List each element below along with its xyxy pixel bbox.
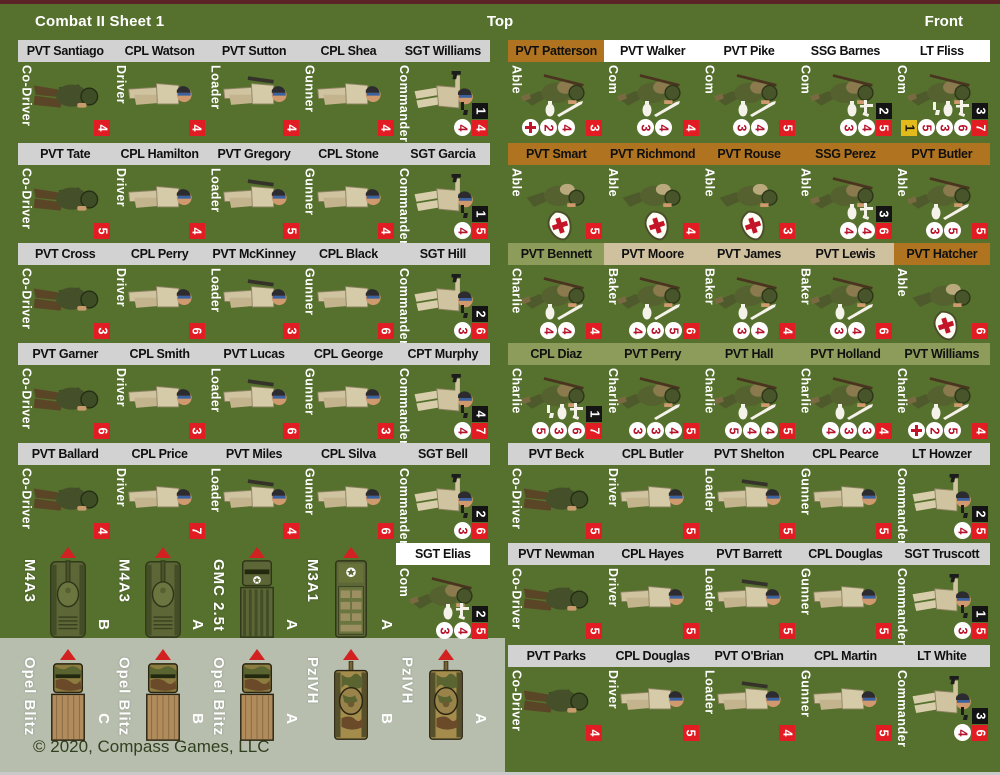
counter-row: Opel BlitzC Opel BlitzB Opel BlitzA PzIV… bbox=[18, 645, 490, 743]
counter-name: CPL Smith bbox=[129, 347, 189, 361]
counter-cell: PVT Newman Co-Driver5 bbox=[508, 543, 604, 641]
counter-body: Gunner4 bbox=[301, 165, 395, 241]
counter-body: Gunner5 bbox=[797, 465, 893, 541]
rifle-icon bbox=[557, 304, 583, 320]
counter-name-strip: PVT Ballard bbox=[18, 443, 112, 465]
counter-name: SGT Truscott bbox=[904, 547, 979, 561]
badge-row: 5 bbox=[94, 223, 110, 239]
number-circle-badge: 4 bbox=[655, 119, 672, 136]
red-number-badge: 5 bbox=[683, 725, 699, 741]
number-circle-badge: 3 bbox=[454, 322, 471, 339]
badge-column: 4 bbox=[972, 423, 988, 439]
counter-body: Baker346 bbox=[797, 265, 893, 341]
front-arrow-icon bbox=[343, 547, 359, 558]
counter-cell: PzIVHB bbox=[301, 645, 395, 743]
soldier-figure-prone bbox=[521, 671, 595, 726]
soldier-figure-prone bbox=[521, 569, 595, 624]
soldier-figure-tan bbox=[125, 369, 199, 424]
yellow-number-badge: 1 bbox=[901, 120, 917, 136]
counter-name: PVT Beck bbox=[529, 447, 584, 461]
front-arrow-icon bbox=[438, 649, 454, 660]
number-circle-badge: 4 bbox=[822, 422, 839, 439]
soldier-figure-tan bbox=[314, 369, 388, 424]
counter-cell: SGT Elias Com3425 bbox=[396, 543, 490, 641]
counter-name-strip: LT Howzer bbox=[894, 443, 990, 465]
badge-column: 2 bbox=[926, 422, 943, 439]
soldier-figure-prone bbox=[31, 469, 105, 524]
badge-column: 5 bbox=[876, 623, 892, 639]
number-circle-badge: 2 bbox=[926, 422, 943, 439]
counter-body: Co-Driver3 bbox=[18, 265, 112, 341]
counter-name-strip: PVT Holland bbox=[797, 343, 893, 365]
counter-body: Driver5 bbox=[604, 465, 700, 541]
badge-column: 4 bbox=[586, 323, 602, 339]
badge-column: 5 bbox=[779, 623, 795, 639]
badge-column: 4 bbox=[779, 725, 795, 741]
counter-body: Commander326 bbox=[396, 465, 490, 541]
badge-column: 5 bbox=[876, 523, 892, 539]
soldier-figure-loader bbox=[220, 66, 294, 121]
counter-cell: SSG Perez Able4436 bbox=[797, 143, 893, 241]
counter-body: Gunner5 bbox=[797, 667, 893, 743]
number-circle-badge: 3 bbox=[733, 119, 750, 136]
number-circle-badge: 4 bbox=[665, 422, 682, 439]
badge-column: 4 bbox=[665, 422, 682, 439]
badge-row: 7 bbox=[189, 523, 205, 539]
badge-row: 415 bbox=[454, 206, 488, 239]
weapon-icons bbox=[545, 101, 583, 117]
vehicle-figure-gmc bbox=[235, 558, 279, 645]
weapon-icons bbox=[642, 304, 680, 320]
counter-body: Driver4 bbox=[112, 165, 206, 241]
counter-name-strip: PVT Sutton bbox=[207, 40, 301, 62]
counter-name-strip: CPL Stone bbox=[301, 143, 395, 165]
red-number-badge: 5 bbox=[683, 523, 699, 539]
counter-body: Co-Driver4 bbox=[18, 62, 112, 138]
counter-name-strip: PVT Beck bbox=[508, 443, 604, 465]
rifle-icon bbox=[750, 304, 776, 320]
counter-body: Loader5 bbox=[207, 165, 301, 241]
counter-cell: SGT Williams Commander414 bbox=[396, 40, 490, 138]
counter-name-strip: PVT Richmond bbox=[604, 143, 700, 165]
number-circle-badge: 3 bbox=[840, 119, 857, 136]
counter-name-strip: PVT Santiago bbox=[18, 40, 112, 62]
counter-cell: CPL Smith Driver3 bbox=[112, 343, 206, 441]
badge-row: 4 bbox=[779, 725, 795, 741]
red-number-badge: 4 bbox=[283, 523, 299, 539]
counter-name: CPL Stone bbox=[318, 147, 378, 161]
badge-row: 436 bbox=[954, 708, 988, 741]
badge-column: 3 bbox=[779, 223, 795, 239]
number-circle-badge: 4 bbox=[558, 322, 575, 339]
counter-body: Co-Driver4 bbox=[18, 465, 112, 541]
counter-body: Opel BlitzB bbox=[112, 645, 206, 743]
vehicle-name: PzIVH bbox=[304, 657, 321, 705]
counter-name-strip: PVT James bbox=[701, 243, 797, 265]
counter-cell: SSG Barnes Com3425 bbox=[797, 40, 893, 138]
counter-name: CPT Murphy bbox=[408, 347, 479, 361]
counter-body: Driver6 bbox=[112, 265, 206, 341]
front-arrow-icon bbox=[343, 649, 359, 660]
badge-column bbox=[644, 210, 672, 239]
counter-name: PVT Richmond bbox=[610, 147, 695, 161]
badge-column: 3 bbox=[647, 422, 664, 439]
front-arrow-icon bbox=[60, 649, 76, 660]
counter-name-strip: PVT Moore bbox=[604, 243, 700, 265]
counter-body: Commander315 bbox=[894, 565, 990, 641]
counter-name: PVT Sutton bbox=[222, 44, 286, 58]
counter-body: Commander415 bbox=[396, 165, 490, 241]
red-number-badge: 6 bbox=[876, 223, 892, 239]
badge-column bbox=[547, 210, 575, 239]
counter-name-strip: SGT Garcia bbox=[396, 143, 490, 165]
red-number-badge: 4 bbox=[683, 120, 699, 136]
badge-column: 4 bbox=[454, 622, 471, 639]
weapon-icons bbox=[738, 304, 776, 320]
counter-cell: PVT Holland Charlie4334 bbox=[797, 343, 893, 441]
badge-column: 5 bbox=[779, 523, 795, 539]
number-circle-badge: 3 bbox=[647, 322, 664, 339]
counter-name-strip: SGT Williams bbox=[396, 40, 490, 62]
counter-cell: PVT Santiago Co-Driver4 bbox=[18, 40, 112, 138]
counter-body: Commander436 bbox=[894, 667, 990, 743]
red-number-badge: 7 bbox=[972, 120, 988, 136]
badge-row: 3 bbox=[283, 323, 299, 339]
badge-column: 4 bbox=[751, 322, 768, 339]
badge-column: 5 bbox=[944, 422, 961, 439]
red-number-badge: 6 bbox=[972, 323, 988, 339]
counter-body: Able355 bbox=[894, 165, 990, 241]
counter-cell: SGT Bell Commander326 bbox=[396, 443, 490, 541]
counter-name-strip: SGT Hill bbox=[396, 243, 490, 265]
soldier-figure-tan bbox=[125, 66, 199, 121]
number-circle-badge: 3 bbox=[647, 422, 664, 439]
counter-cell: CPT Murphy Commander447 bbox=[396, 343, 490, 441]
counter-cell: CPL Silva Gunner6 bbox=[301, 443, 395, 541]
counter-name: PVT Miles bbox=[226, 447, 282, 461]
badge-column: 26 bbox=[472, 306, 488, 339]
counter-cell: Opel BlitzC bbox=[18, 645, 112, 743]
badge-column bbox=[962, 235, 971, 239]
rifle-icon bbox=[847, 304, 873, 320]
badge-row: 315 bbox=[954, 606, 988, 639]
counter-cell: PVT James Baker344 bbox=[701, 243, 797, 341]
counter-name-strip: PVT Butler bbox=[894, 143, 990, 165]
counter-sheet: Combat II Sheet 1 Top Front © 2020, Comp… bbox=[0, 0, 1000, 775]
badge-row: 6 bbox=[378, 523, 394, 539]
counter-name-strip: PVT Newman bbox=[508, 543, 604, 565]
counter-cell: PzIVHA bbox=[396, 645, 490, 743]
badge-row: 4 bbox=[283, 120, 299, 136]
counter-cell: M4A3B bbox=[18, 543, 112, 641]
counter-name: PVT Barrett bbox=[716, 547, 781, 561]
counter-body: PzIVHB bbox=[301, 645, 395, 743]
black-number-badge: 2 bbox=[472, 506, 488, 522]
badge-column: 4 bbox=[378, 223, 394, 239]
number-circle-badge: 4 bbox=[540, 322, 557, 339]
counter-name-strip: SGT Bell bbox=[396, 443, 490, 465]
counter-cell: PVT Lucas Loader6 bbox=[207, 343, 301, 441]
badge-column: 36 bbox=[972, 708, 988, 741]
counter-name-strip: CPL Shea bbox=[301, 40, 395, 62]
counter-body: M3A1A bbox=[301, 565, 395, 641]
red-number-badge: 4 bbox=[586, 725, 602, 741]
counter-name: PVT Lewis bbox=[816, 247, 876, 261]
counter-cell: PVT Hatcher Able6 bbox=[894, 243, 990, 341]
counter-body: Driver7 bbox=[112, 465, 206, 541]
soldier-figure-tan bbox=[125, 169, 199, 224]
counter-name-strip: PVT Rouse bbox=[701, 143, 797, 165]
counter-name: PVT Shelton bbox=[714, 447, 784, 461]
counter-name-strip: PVT Hatcher bbox=[894, 243, 990, 265]
counter-name-strip: CPL Silva bbox=[301, 443, 395, 465]
badge-column: 4 bbox=[954, 522, 971, 539]
counter-body: Co-Driver5 bbox=[508, 465, 604, 541]
number-circle-badge: 3 bbox=[840, 422, 857, 439]
counter-cell: CPL Hayes Driver5 bbox=[604, 543, 700, 641]
counter-cell: PVT Ballard Co-Driver4 bbox=[18, 443, 112, 541]
badge-column: 5 bbox=[779, 120, 795, 136]
red-number-badge: 4 bbox=[586, 323, 602, 339]
badge-row: 5 bbox=[683, 623, 699, 639]
counter-name-strip: CPL Black bbox=[301, 243, 395, 265]
counter-row: PVT Beck Co-Driver5 CPL Butler Driver5 P… bbox=[508, 443, 990, 541]
counter-cell: LT White Commander436 bbox=[894, 645, 990, 743]
badge-row: 326 bbox=[454, 506, 488, 539]
counter-body: GMC 2.5tA bbox=[207, 565, 301, 641]
counter-body: Commander414 bbox=[396, 62, 490, 138]
number-circle-badge: 4 bbox=[954, 724, 971, 741]
badge-row: 254 bbox=[908, 422, 988, 439]
counter-name-strip: CPL Butler bbox=[604, 443, 700, 465]
number-circle-badge: 5 bbox=[725, 422, 742, 439]
red-number-badge: 3 bbox=[779, 223, 795, 239]
badge-row: 4 bbox=[378, 223, 394, 239]
soldier-figure-tan bbox=[810, 469, 884, 524]
badge-column: 4 bbox=[848, 322, 865, 339]
badge-row: 5 bbox=[586, 523, 602, 539]
badge-row: 4 bbox=[189, 223, 205, 239]
badge-column: 6 bbox=[283, 423, 299, 439]
badge-row: 3 bbox=[378, 423, 394, 439]
badge-row: 344 bbox=[733, 322, 795, 339]
soldier-figure-loader bbox=[220, 369, 294, 424]
counter-name: CPL Hayes bbox=[621, 547, 683, 561]
black-number-badge: 1 bbox=[586, 406, 602, 422]
badge-column bbox=[908, 422, 925, 439]
badge-row: 4 bbox=[94, 523, 110, 539]
counter-name: CPL Douglas bbox=[615, 649, 689, 663]
badge-column: 4 bbox=[454, 119, 471, 136]
counter-body: Opel BlitzA bbox=[207, 645, 301, 743]
counter-cell: M3A1A bbox=[301, 543, 395, 641]
badge-row: 5 bbox=[876, 623, 892, 639]
counter-cell: Opel BlitzB bbox=[112, 645, 206, 743]
medic-shield-badge bbox=[640, 207, 674, 245]
grenade-icon bbox=[738, 404, 748, 420]
badge-row: 425 bbox=[954, 506, 988, 539]
vehicle-variant-letter: C bbox=[94, 713, 111, 724]
counter-cell: SGT Truscott Commander315 bbox=[894, 543, 990, 641]
counter-cell: PVT Parks Co-Driver4 bbox=[508, 645, 604, 743]
badge-column bbox=[576, 132, 585, 136]
counter-cell: PVT Williams Charlie254 bbox=[894, 343, 990, 441]
counter-name: SGT Hill bbox=[420, 247, 466, 261]
counter-body: Able4 bbox=[604, 165, 700, 241]
weapon-icons bbox=[642, 101, 680, 117]
counter-name-strip: PVT Williams bbox=[894, 343, 990, 365]
badge-column: 3 bbox=[454, 522, 471, 539]
badge-column: 3 bbox=[840, 119, 857, 136]
counter-body: M4A3A bbox=[112, 565, 206, 641]
badge-row: 5 bbox=[779, 623, 795, 639]
red-number-badge: 6 bbox=[189, 323, 205, 339]
grenade-icon bbox=[545, 304, 555, 320]
red-number-badge: 5 bbox=[586, 623, 602, 639]
weapon-icons bbox=[738, 101, 776, 117]
badge-row: 5 bbox=[283, 223, 299, 239]
badge-column: 25 bbox=[472, 606, 488, 639]
black-number-badge: 2 bbox=[876, 103, 892, 119]
badge-row: 5 bbox=[876, 725, 892, 741]
badge-column: 2 bbox=[540, 119, 557, 136]
red-number-badge: 6 bbox=[378, 523, 394, 539]
badge-row: 3 bbox=[94, 323, 110, 339]
number-circle-badge: 4 bbox=[454, 222, 471, 239]
red-number-badge: 6 bbox=[972, 725, 988, 741]
counter-cell: PVT Shelton Loader5 bbox=[701, 443, 797, 541]
counter-body: Com344 bbox=[604, 62, 700, 138]
counter-name-strip: CPL Douglas bbox=[797, 543, 893, 565]
counter-name: CPL Diaz bbox=[530, 347, 582, 361]
soldier-figure-loader bbox=[220, 269, 294, 324]
counter-name-strip: SGT Elias bbox=[396, 543, 490, 565]
counter-name-strip: CPL Smith bbox=[112, 343, 206, 365]
red-number-badge: 3 bbox=[586, 120, 602, 136]
badge-gap bbox=[962, 235, 971, 239]
badge-row: 344 bbox=[637, 119, 699, 136]
badge-column: 4 bbox=[94, 523, 110, 539]
front-arrow-icon bbox=[155, 649, 171, 660]
red-number-badge: 3 bbox=[378, 423, 394, 439]
counter-body: Commander447 bbox=[396, 365, 490, 441]
counter-cell: CPL Pearce Gunner5 bbox=[797, 443, 893, 541]
badge-gap bbox=[576, 132, 585, 136]
soldier-figure-tan bbox=[314, 169, 388, 224]
counter-cell: CPL Shea Gunner4 bbox=[301, 40, 395, 138]
badge-column: 5 bbox=[779, 423, 795, 439]
red-number-badge: 5 bbox=[472, 623, 488, 639]
badge-column: 37 bbox=[972, 103, 988, 136]
counter-cell: PVT Moore Baker4356 bbox=[604, 243, 700, 341]
counter-name: PVT Hall bbox=[725, 347, 773, 361]
counter-row: PVT Santiago Co-Driver4 CPL Watson Drive… bbox=[18, 40, 490, 138]
number-circle-badge: 3 bbox=[926, 222, 943, 239]
soldier-figure-loader bbox=[220, 469, 294, 524]
red-number-badge: 7 bbox=[586, 423, 602, 439]
counter-name-strip: CPL Martin bbox=[797, 645, 893, 667]
red-number-badge: 4 bbox=[779, 323, 795, 339]
grenade-icon bbox=[835, 404, 845, 420]
badge-column: 4 bbox=[683, 223, 699, 239]
counter-body: Driver4 bbox=[112, 62, 206, 138]
black-number-badge: 1 bbox=[972, 606, 988, 622]
badge-column: 3 bbox=[586, 120, 602, 136]
number-circle-badge: 3 bbox=[436, 622, 453, 639]
counter-body: Com345 bbox=[701, 62, 797, 138]
counter-name-strip: CPL Diaz bbox=[508, 343, 604, 365]
red-number-badge: 4 bbox=[283, 120, 299, 136]
badge-row: 5 bbox=[586, 623, 602, 639]
soldier-figure-tan bbox=[125, 269, 199, 324]
black-number-badge: 4 bbox=[472, 406, 488, 422]
counter-name-strip: PVT O'Brian bbox=[701, 645, 797, 667]
badge-column bbox=[576, 335, 585, 339]
counter-name: CPL Silva bbox=[321, 447, 376, 461]
badge-column: 3 bbox=[550, 422, 567, 439]
number-circle-badge: 3 bbox=[550, 422, 567, 439]
counter-name: PVT Hatcher bbox=[906, 247, 977, 261]
red-number-badge: 4 bbox=[779, 725, 795, 741]
counter-cell: CPL Douglas Driver5 bbox=[604, 645, 700, 743]
counter-row: PVT Cross Co-Driver3 CPL Perry Driver6 P… bbox=[18, 243, 490, 341]
red-number-badge: 5 bbox=[972, 523, 988, 539]
medic-cross-badge bbox=[908, 422, 925, 439]
soldier-figure-tan bbox=[617, 569, 691, 624]
badge-column bbox=[769, 132, 778, 136]
counter-cell: PVT Sutton Loader4 bbox=[207, 40, 301, 138]
red-number-badge: 5 bbox=[683, 623, 699, 639]
counter-body: Co-Driver6 bbox=[18, 365, 112, 441]
red-number-badge: 4 bbox=[189, 223, 205, 239]
number-circle-badge: 3 bbox=[733, 322, 750, 339]
red-number-badge: 5 bbox=[779, 523, 795, 539]
counter-name: LT White bbox=[917, 649, 966, 663]
badge-gap bbox=[866, 335, 875, 339]
counter-name-strip: PVT Garner bbox=[18, 343, 112, 365]
counter-cell: PVT Hall Charlie5445 bbox=[701, 343, 797, 441]
counter-body: Co-Driver4 bbox=[508, 667, 604, 743]
weapon-icons bbox=[835, 304, 873, 320]
red-number-badge: 5 bbox=[472, 223, 488, 239]
badge-gap bbox=[673, 132, 682, 136]
number-circle-badge: 4 bbox=[848, 322, 865, 339]
red-number-badge: 4 bbox=[378, 223, 394, 239]
right-counter-panel: PVT Patterson Able243 PVT Walker Com344 … bbox=[508, 0, 990, 775]
vehicle-variant-letter: B bbox=[94, 619, 111, 630]
counter-row: PVT Patterson Able243 PVT Walker Com344 … bbox=[508, 40, 990, 138]
badge-row: 414 bbox=[454, 103, 488, 136]
badge-row: 4 bbox=[189, 120, 205, 136]
red-number-badge: 7 bbox=[472, 423, 488, 439]
soldier-figure-prone bbox=[521, 469, 595, 524]
red-number-badge: 6 bbox=[378, 323, 394, 339]
badge-column: 4 bbox=[683, 120, 699, 136]
counter-name-strip: PVT Gregory bbox=[207, 143, 301, 165]
number-circle-badge: 4 bbox=[454, 119, 471, 136]
rifle-icon bbox=[943, 204, 969, 220]
counter-body: Loader4 bbox=[207, 465, 301, 541]
red-number-badge: 5 bbox=[779, 623, 795, 639]
counter-body: Able3 bbox=[701, 165, 797, 241]
counter-name-strip: CPL Douglas bbox=[604, 645, 700, 667]
counter-name: PVT Garner bbox=[32, 347, 98, 361]
badge-row: 6 bbox=[933, 310, 988, 339]
badge-column: 1 bbox=[901, 120, 917, 136]
rifle-icon bbox=[847, 404, 873, 420]
badge-gap bbox=[576, 335, 585, 339]
badge-column: 5 bbox=[283, 223, 299, 239]
